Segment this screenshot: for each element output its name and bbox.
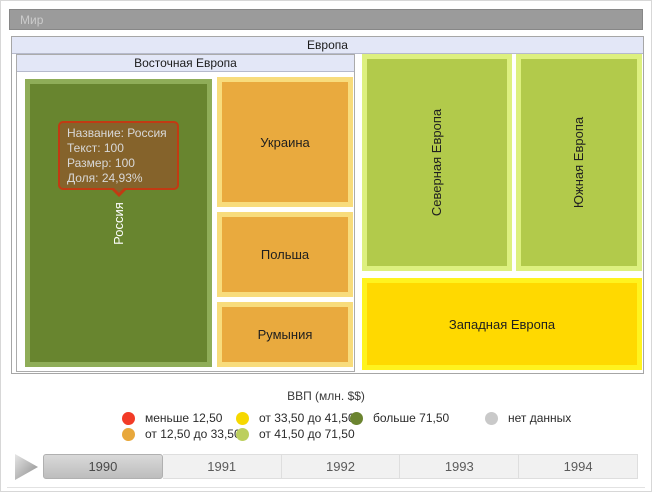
treemap-node-romania[interactable]: Румыния [217,302,353,367]
root-node-label: Мир [20,13,43,27]
legend-swatch-red [122,412,135,425]
legend-item-41-50-to-71-50: от 41,50 до 71,50 [236,426,355,442]
legend-swatch-gray [485,412,498,425]
node-label-western-europe: Западная Европа [449,317,555,332]
year-button-1990[interactable]: 1990 [43,454,163,479]
timeline-bottom-divider [7,487,645,488]
legend-item-less-12-50: меньше 12,50 [122,410,222,426]
node-label-southern-europe: Южная Европа [571,117,586,208]
root-node-header[interactable]: Мир [9,9,643,30]
legend-swatch-yellowgreen [236,428,249,441]
node-label-romania: Румыния [258,327,313,342]
treemap-node-poland[interactable]: Польша [217,212,353,297]
legend-item-no-data: нет данных [485,410,571,426]
play-button[interactable] [13,454,39,480]
tooltip-russia: Название: Россия Текст: 100 Размер: 100 … [58,121,179,190]
year-button-1994[interactable]: 1994 [519,454,638,479]
tooltip-text-line: Текст: 100 [67,141,170,156]
group-header-europe[interactable]: Европа [12,37,643,54]
legend-label: больше 71,50 [373,411,449,425]
legend-swatch-orange [122,428,135,441]
legend-label: от 12,50 до 33,50 [145,427,241,441]
legend-label: от 41,50 до 71,50 [259,427,355,441]
tooltip-size-line: Размер: 100 [67,156,170,171]
treemap-node-western-europe[interactable]: Западная Европа [362,278,642,370]
node-label-poland: Польша [261,247,309,262]
legend-swatch-darkgreen [350,412,363,425]
node-label-russia: Россия [111,202,126,245]
legend-label: меньше 12,50 [145,411,222,425]
year-button-1993[interactable]: 1993 [400,454,519,479]
app-window: Мир Европа Восточная Европа Россия Украи… [0,0,652,492]
legend-title: ВВП (млн. $$) [1,389,651,403]
legend-label: нет данных [508,411,571,425]
treemap-node-southern-europe[interactable]: Южная Европа [516,54,642,271]
tooltip-share-line: Доля: 24,93% [67,171,170,186]
timeline-year-track: 1990 1991 1992 1993 1994 [43,454,638,479]
legend-item-more-71-50: больше 71,50 [350,410,449,426]
node-label-ukraine: Украина [260,135,310,150]
node-label-northern-europe: Северная Европа [430,109,445,216]
year-button-1991[interactable]: 1991 [163,454,282,479]
group-label-eastern-europe: Восточная Европа [134,56,237,70]
group-label-europe: Европа [307,38,348,52]
legend-label: от 33,50 до 41,50 [259,411,355,425]
group-header-eastern-europe[interactable]: Восточная Европа [17,55,354,72]
treemap-node-ukraine[interactable]: Украина [217,77,353,207]
legend-item-12-50-to-33-50: от 12,50 до 33,50 [122,426,241,442]
legend-swatch-yellow [236,412,249,425]
play-icon [13,468,39,483]
treemap-node-northern-europe[interactable]: Северная Европа [362,54,512,271]
year-button-1992[interactable]: 1992 [282,454,401,479]
legend-item-33-50-to-41-50: от 33,50 до 41,50 [236,410,355,426]
tooltip-name-line: Название: Россия [67,126,170,141]
